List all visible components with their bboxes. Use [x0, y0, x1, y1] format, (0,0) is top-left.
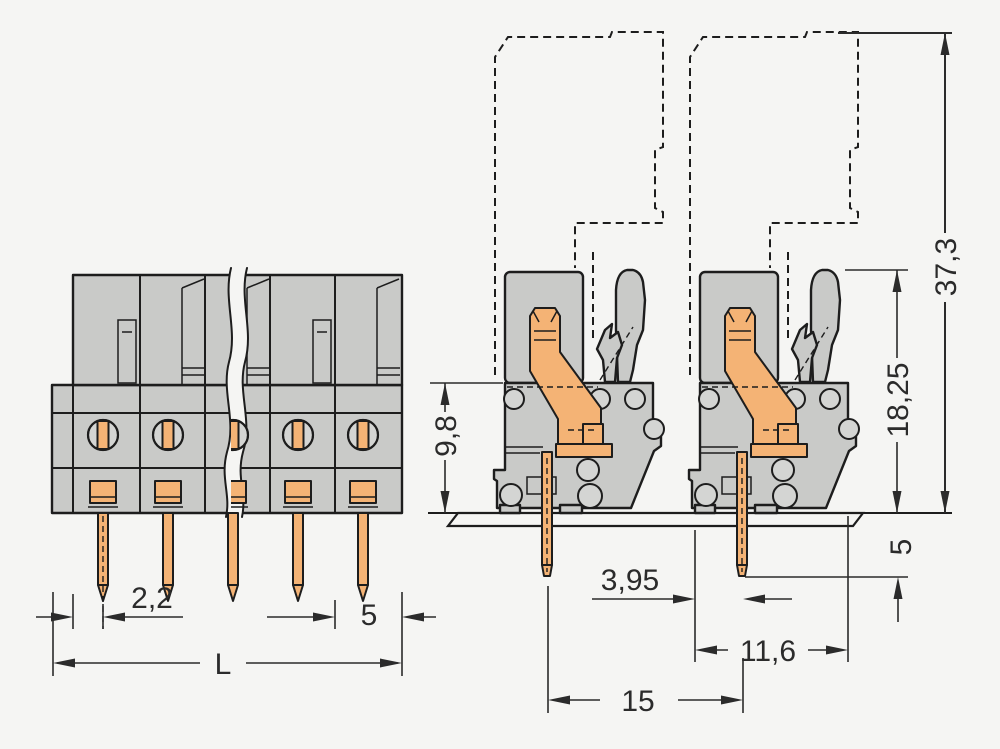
- dim-overall-length: L: [53, 648, 402, 681]
- dim-label-pitch: 5: [361, 599, 378, 632]
- dim-depth: 11,6: [695, 635, 848, 668]
- dim-label-pin-below-board: 5: [885, 539, 918, 556]
- dim-pin-offset: 2,2: [36, 582, 183, 622]
- dim-label-overall-length: L: [215, 648, 232, 681]
- dim-pin-below-board: 5: [745, 539, 918, 622]
- dim-label-pin-to-face: 3,95: [601, 564, 659, 597]
- dim-body-height: 9,8: [430, 383, 503, 513]
- dim-latch-height: 18,25: [845, 270, 915, 513]
- dim-pin-to-face: 3,95: [592, 516, 848, 662]
- drawing-svg: 2,2 5 L 9,8 18,25: [0, 0, 1000, 749]
- dim-label-pin-offset: 2,2: [131, 582, 173, 615]
- dim-label-body-height: 9,8: [430, 415, 463, 457]
- dim-label-latch-height: 18,25: [882, 362, 915, 437]
- dim-label-depth: 11,6: [740, 635, 796, 668]
- dim-label-pin-spacing: 15: [621, 685, 654, 718]
- dim-label-total-height: 37,3: [930, 238, 963, 296]
- front-view: [52, 268, 402, 629]
- dim-pitch: 5: [267, 599, 436, 632]
- technical-drawing: 2,2 5 L 9,8 18,25: [0, 0, 1000, 749]
- side-view: [428, 32, 952, 576]
- pcb-board: [448, 513, 863, 526]
